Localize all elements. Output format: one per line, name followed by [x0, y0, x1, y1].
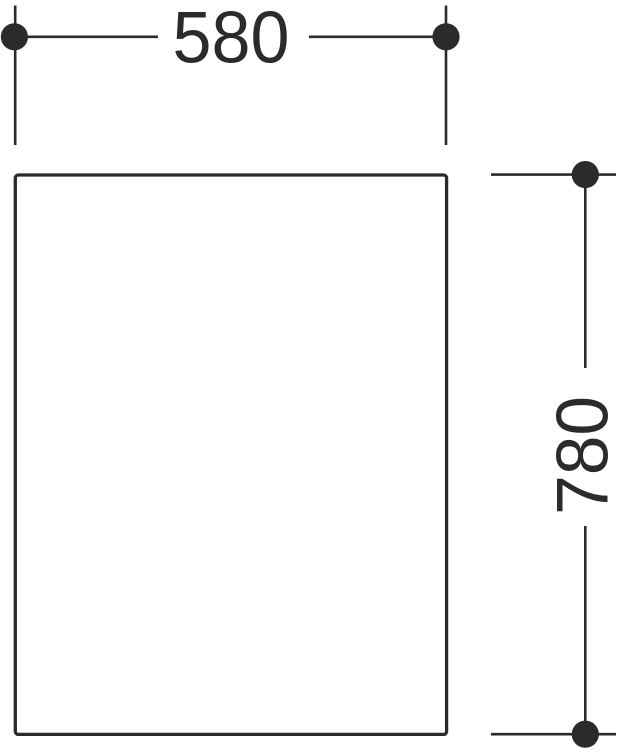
svg-text:580: 580	[173, 0, 290, 79]
svg-text:780: 780	[543, 396, 622, 515]
